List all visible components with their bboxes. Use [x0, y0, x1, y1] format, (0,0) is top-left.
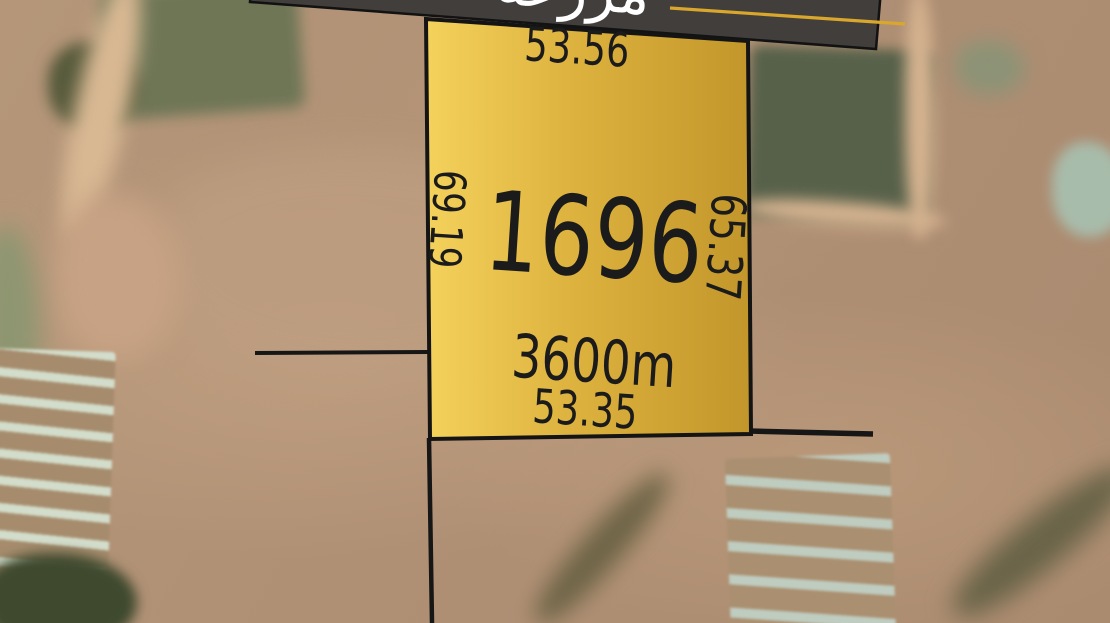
- cadastral-overlay: [0, 0, 1110, 623]
- boundary-line-east: [749, 431, 873, 434]
- parcel-number-label: 1696: [481, 176, 706, 300]
- dimension-bottom-label: 53.35: [531, 383, 639, 437]
- parcel-map-canvas: مزرعة 53.56 1696 69.19 65.37 3600m 53.35: [0, 0, 1110, 623]
- dimension-top-label: 53.56: [523, 21, 631, 75]
- boundary-line-west: [255, 352, 428, 353]
- dimension-left-label: 69.19: [421, 169, 471, 270]
- dimension-right-label: 65.37: [698, 192, 753, 302]
- boundary-line-south: [429, 438, 432, 623]
